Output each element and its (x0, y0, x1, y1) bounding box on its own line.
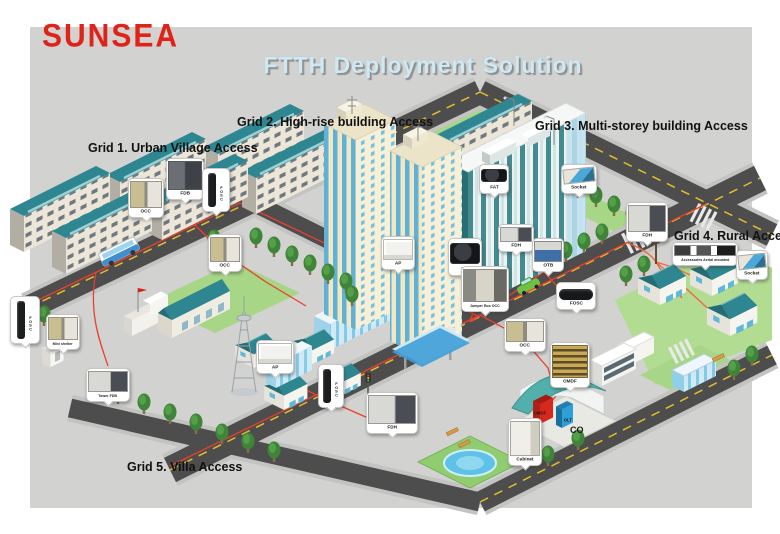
fdb-wallbox-icon (168, 161, 202, 190)
aerial-accessories-icon (674, 245, 736, 256)
callout-otb: OTB (532, 238, 564, 272)
socket-icon (562, 166, 595, 185)
fosc-closure-icon (559, 289, 593, 300)
fdh-cabinets-icon (628, 205, 666, 232)
fat-device-icon (450, 243, 480, 264)
callout-fdh-grid3: FDH (498, 224, 534, 252)
callout-occ-grid1: OCC (128, 178, 164, 218)
callout-fdh-villa: FDH (366, 392, 418, 434)
callout-socket-grid3: Socket (561, 164, 597, 194)
grid4-label: Grid 4. Rural Access (674, 229, 780, 243)
grid1-label: Grid 1. Urban Village Access (88, 141, 258, 155)
sunsea-logo: SUNSEA (42, 19, 179, 56)
fat-device-icon (481, 169, 507, 182)
callout-cabinet: Cabinet (508, 418, 542, 466)
callout-fdb-grid1: FDB (166, 158, 204, 200)
tower-fdb-icon (88, 371, 128, 392)
tower-1 (324, 96, 396, 330)
ap-box-icon (383, 239, 413, 260)
callout-fdh-rural: FDH (626, 202, 668, 242)
callout-omdf: OMDF (550, 342, 590, 388)
omdf-rack-icon (552, 345, 588, 378)
callout-jumper-box-occ: Jumper Box OCC (461, 266, 509, 312)
occ-cabinet-icon (506, 321, 544, 342)
olt-ground-label: OLT (564, 419, 572, 423)
callout-ap-highrise: AP (381, 236, 415, 270)
fosc-pole-icon (323, 369, 331, 403)
fosc-pole-icon (17, 301, 25, 339)
callout-fat-grid3: FAT (479, 164, 509, 194)
callout-ap-villa: AP (256, 340, 294, 374)
socket-icon (737, 253, 766, 271)
callout-fosc-main-road: FOSC (556, 282, 596, 310)
callout-fosc-grid1: FOSC (202, 168, 230, 212)
callout-mini-shelter: Mini shelter (46, 314, 80, 350)
occ-cabinet-icon (210, 237, 240, 262)
callout-fosc-villa: FOSC (318, 364, 344, 408)
fosc-pole-icon (208, 173, 216, 207)
omdf-ground-label: OMDF (534, 412, 546, 416)
grid2-label: Grid 2. High-rise building Access (237, 115, 433, 129)
grid3-label: Grid 3. Multi-storey building Access (535, 119, 748, 133)
callout-tower-fdb: Tower FDB (86, 368, 130, 402)
mini-shelter-icon (48, 317, 78, 340)
otb-icon (534, 241, 562, 262)
fdh-cabinets-icon (368, 395, 416, 424)
callout-accessories-aerial: Accessories Aerial mounted (672, 242, 738, 266)
callout-socket-rural: Socket (736, 250, 768, 280)
jumper-box-icon (463, 269, 507, 302)
callout-fosc-left-road: FOSC (10, 296, 40, 344)
callout-occ-grid1-street: OCC (208, 234, 242, 272)
callout-occ-co-road: OCC (504, 318, 546, 352)
cabinet-icon (510, 421, 540, 456)
fdh-cabinets-icon (500, 227, 532, 242)
ftth-deployment-diagram: { "brand": { "logo_text": "SUNSEA", "log… (0, 0, 780, 534)
ap-box-icon (258, 343, 292, 364)
occ-cabinet-icon (130, 181, 162, 208)
grid5-label: Grid 5. Villa Access (127, 460, 242, 474)
co-ground-label: CO (570, 426, 584, 435)
page-title: FTTH Deployment Solution (248, 52, 598, 79)
